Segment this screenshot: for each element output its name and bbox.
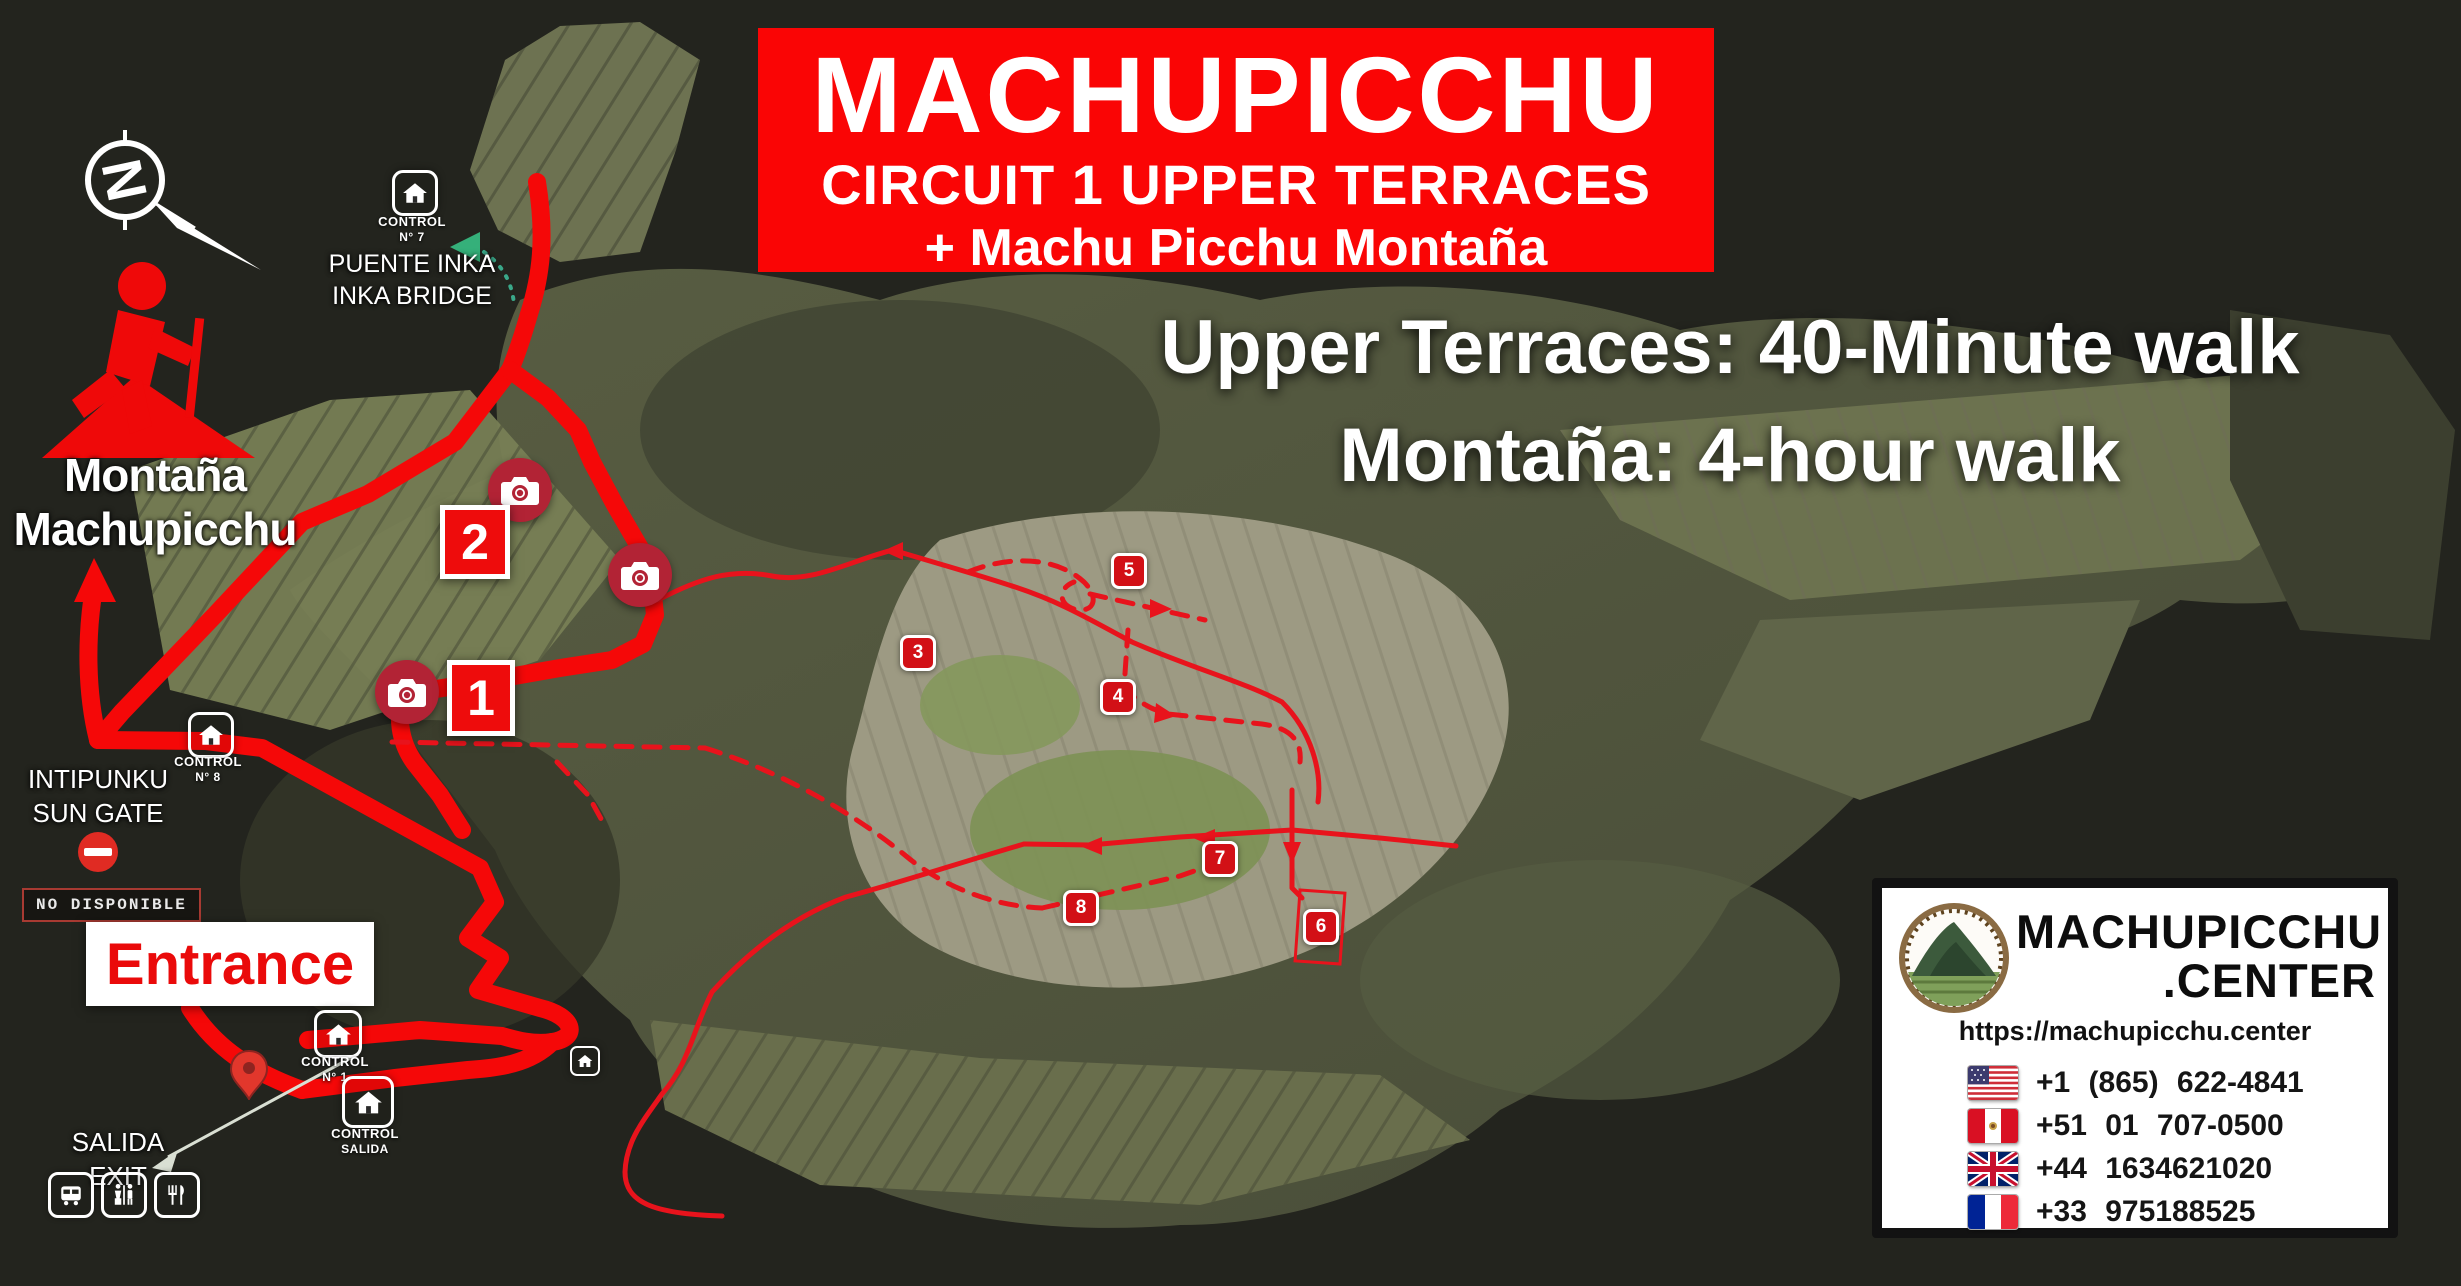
restroom-icon xyxy=(101,1172,147,1218)
phone-number-us: +1 (865) 622-4841 xyxy=(2036,1066,2304,1100)
circuit-marker-5: 5 xyxy=(1111,553,1147,589)
control-7-house-icon xyxy=(392,170,438,216)
us-flag-icon xyxy=(1968,1066,2018,1100)
entrance-label: Entrance xyxy=(106,931,354,998)
location-pin-icon xyxy=(230,1050,268,1100)
uk-flag-icon xyxy=(1968,1152,2018,1186)
circuit-marker-7: 7 xyxy=(1202,841,1238,877)
camera-photo-spot-icon xyxy=(375,660,439,724)
phone-row-peru[interactable]: +51 01 707-0500 xyxy=(1968,1107,2284,1145)
circuit-marker-1: 1 xyxy=(447,660,515,736)
route-arrowheads xyxy=(883,542,1301,864)
small-house-icon xyxy=(570,1046,600,1076)
walk-duration-info: Upper Terraces: 40-Minute walk Montaña: … xyxy=(1080,294,2380,510)
control-salida-house-icon xyxy=(342,1076,394,1128)
machupicchu-center-logo xyxy=(1898,902,2010,1014)
circuit-marker-2: 2 xyxy=(440,505,510,579)
phone-number-uk: +44 1634621020 xyxy=(2036,1152,2272,1186)
circuit-marker-8: 8 xyxy=(1063,890,1099,926)
camera-photo-spot-icon xyxy=(608,543,672,607)
contact-info-box: MACHUPICCHU .CENTER https://machupicchu.… xyxy=(1872,878,2398,1238)
montana-route-arrow xyxy=(74,558,116,602)
phone-row-uk[interactable]: +44 1634621020 xyxy=(1968,1150,2272,1188)
control-salida-label: CONTROL SALIDA xyxy=(295,1126,435,1156)
intipunku-label: INTIPUNKU SUN GATE xyxy=(8,762,188,831)
walk-duration-line1: Upper Terraces: 40-Minute walk xyxy=(1080,294,2380,402)
circuit-marker-4: 4 xyxy=(1100,679,1136,715)
no-entry-icon xyxy=(76,830,120,874)
inka-bridge-label: PUENTE INKA INKA BRIDGE xyxy=(302,248,522,312)
phone-number-peru: +51 01 707-0500 xyxy=(2036,1109,2284,1143)
phone-number-france: +33 975188525 xyxy=(2036,1195,2255,1229)
machu-picchu-circuit-map: MACHUPICCHU CIRCUIT 1 UPPER TERRACES + M… xyxy=(0,0,2461,1286)
svg-text:N: N xyxy=(89,154,159,207)
control-7-label: CONTROL N° 7 xyxy=(352,214,472,244)
bus-icon xyxy=(48,1172,94,1218)
map-title: MACHUPICCHU xyxy=(760,40,1712,150)
map-subtitle-2: + Machu Picchu Montaña xyxy=(760,221,1712,276)
peru-flag-icon xyxy=(1968,1109,2018,1143)
phone-row-us[interactable]: +1 (865) 622-4841 xyxy=(1968,1064,2304,1102)
marker-6-building-outline xyxy=(1293,888,1346,965)
intipunku-status-badge: NO DISPONIBLE xyxy=(22,888,201,922)
montana-label: Montaña Machupicchu xyxy=(0,448,310,557)
phone-row-france[interactable]: +33 975188525 xyxy=(1968,1193,2255,1231)
brand-name: MACHUPICCHU .CENTER xyxy=(2016,908,2376,1006)
route-thin-solid xyxy=(625,550,1456,1216)
control-1-house-icon xyxy=(314,1010,362,1058)
route-thin-dashed xyxy=(392,561,1300,908)
walk-duration-line2: Montaña: 4-hour walk xyxy=(1080,402,2380,510)
circuit-marker-3: 3 xyxy=(900,635,936,671)
title-banner: MACHUPICCHU CIRCUIT 1 UPPER TERRACES + M… xyxy=(760,30,1712,270)
facilities-icons xyxy=(48,1172,200,1218)
website-url[interactable]: https://machupicchu.center xyxy=(1882,1016,2388,1047)
restaurant-icon xyxy=(154,1172,200,1218)
hiker-mountain-icon xyxy=(30,248,265,473)
entrance-label-box: Entrance xyxy=(86,922,374,1006)
control-8-house-icon xyxy=(188,712,234,758)
france-flag-icon xyxy=(1968,1195,2018,1229)
map-subtitle: CIRCUIT 1 UPPER TERRACES xyxy=(760,156,1712,215)
